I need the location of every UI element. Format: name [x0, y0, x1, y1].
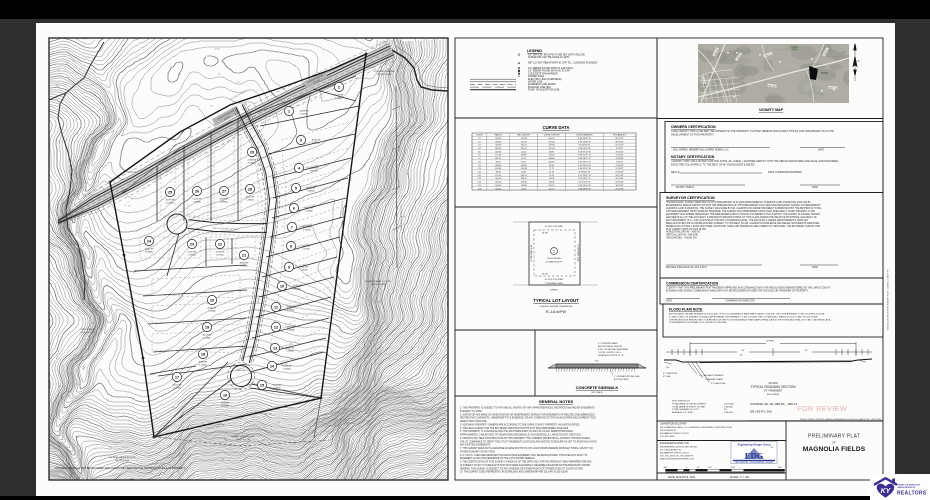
svg-text:62°51'57": 62°51'57" — [615, 145, 624, 147]
svg-text:C9: C9 — [478, 165, 480, 167]
svg-text:758: 758 — [100, 349, 103, 351]
svg-text:STREET: STREET — [258, 295, 261, 303]
svg-text:N: N — [858, 59, 860, 63]
svg-text:20.08: 20.08 — [549, 178, 554, 180]
svg-text:10. THIS SURVEY DOES REPRESENT: 10. THIS SURVEY DOES REPRESENT OR ESTABL… — [460, 471, 569, 474]
svg-text:100': 100' — [708, 467, 712, 469]
svg-text:240.00: 240.00 — [495, 178, 501, 180]
svg-text:WBILLINGS@ENGDESGRP.COM: WBILLINGS@ENGDESGRP.COM — [660, 459, 694, 461]
svg-text:OWNER/DEVELOPER: OWNER/DEVELOPER — [660, 422, 687, 426]
svg-text:PRELIMINARY PLAT: PRELIMINARY PLAT — [808, 434, 861, 440]
svg-text:57°45'15": 57°45'15" — [615, 155, 624, 157]
svg-text:760: 760 — [83, 195, 86, 197]
svg-text:760: 760 — [378, 158, 381, 160]
svg-text:736: 736 — [210, 105, 213, 108]
svg-text:S 51°36'14" W: S 51°36'14" W — [578, 165, 591, 167]
svg-text:41,215 SF: 41,215 SF — [287, 327, 297, 329]
svg-text:4. THE FIELD SURVEY FOR THE BO: 4. THE FIELD SURVEY FOR THE BOUNDARY DEP… — [460, 427, 569, 430]
svg-text:112.14: 112.14 — [521, 141, 528, 143]
svg-text:C10: C10 — [478, 168, 482, 170]
svg-text:GEOID MODEL – GEOID 12A: GEOID MODEL – GEOID 12A — [666, 237, 697, 240]
svg-text:MAGNOLIA FIELDS PRELIMINARY PL: MAGNOLIA FIELDS PRELIMINARY PLAT – LARUE… — [887, 269, 890, 330]
svg-text:165.74: 165.74 — [521, 145, 528, 147]
svg-text:DB 248 PG 441: DB 248 PG 441 — [377, 74, 392, 76]
svg-text:DB 108 PG 93: DB 108 PG 93 — [115, 460, 129, 462]
svg-text:UTILITY COMPANIES TO VERIFY TH: UTILITY COMPANIES TO VERIFY THE UTILITY … — [460, 440, 597, 443]
svg-text:MAGNOLIA FIELDS: MAGNOLIA FIELDS — [803, 446, 866, 453]
svg-text:HUNAC & BELVED DMY: HUNAC & BELVED DMY — [231, 435, 255, 438]
svg-text:CHORD LENGTH: CHORD LENGTH — [544, 135, 560, 137]
svg-text:(NO SCALE): (NO SCALE) — [591, 391, 603, 394]
svg-text:224 N MILES ST: 224 N MILES ST — [660, 430, 677, 432]
svg-text:DATE COMMISSION EXPIRES: DATE COMMISSION EXPIRES — [768, 171, 802, 174]
svg-text:7. THIS SURVEY DOES NOT GUARAN: 7. THIS SURVEY DOES NOT GUARANTEE ACCESS… — [460, 447, 593, 450]
svg-text:PLANNING AND ZONING COMMISSION: PLANNING AND ZONING COMMISSION, WHICH MA… — [666, 290, 809, 293]
svg-text:350.00: 350.00 — [495, 188, 501, 190]
svg-text:47,388 SF: 47,388 SF — [248, 159, 258, 161]
svg-text:256.00: 256.00 — [495, 138, 501, 140]
svg-text:ELIZABETHTOWN KY 42701: ELIZABETHTOWN KY 42701 — [660, 432, 690, 435]
svg-text:DATE: DATE — [666, 299, 672, 302]
svg-text:794: 794 — [371, 340, 374, 342]
svg-text:5°23'23": 5°23'23" — [616, 161, 624, 163]
svg-text:C11: C11 — [478, 172, 481, 174]
svg-text:3. ADJOINING PROPERTY OWNERS A: 3. ADJOINING PROPERTY OWNERS ARE ACCORDI… — [460, 423, 580, 426]
svg-text:50,894 SF: 50,894 SF — [305, 208, 315, 210]
svg-text:SITE: SITE — [821, 71, 828, 75]
svg-text:270–769–7438 270–765–6908 FX: 270–769–7438 270–765–6908 FX — [660, 456, 694, 458]
svg-text:8. IF UTILITY LINES ARE REMOVE: 8. IF UTILITY LINES ARE REMOVED THE ASSO… — [460, 454, 588, 457]
svg-text:4" CRUSHED STONE, DGA,: 4" CRUSHED STONE, DGA, — [614, 375, 640, 378]
svg-text:AND MEETS ALL OF THE ACCURACY: AND MEETS ALL OF THE ACCURACY & PRECISIO… — [666, 216, 817, 219]
svg-text:44,799 SF: 44,799 SF — [166, 199, 176, 201]
svg-text:C12: C12 — [478, 175, 482, 177]
svg-text:48,704 SF: 48,704 SF — [203, 334, 213, 336]
svg-text:713: 713 — [58, 141, 61, 144]
svg-text:499.00: 499.00 — [495, 165, 501, 167]
svg-text:WILL HARRIS HOMES, LLC & HAYFI: WILL HARRIS HOMES, LLC & HAYFIELD BROTHE… — [660, 426, 732, 429]
svg-text:21°47'40": 21°47'40" — [615, 188, 624, 190]
svg-text:780: 780 — [420, 265, 423, 267]
svg-text:198.21: 198.21 — [521, 178, 527, 180]
svg-text:50,709 SF: 50,709 SF — [335, 94, 345, 96]
svg-text:726: 726 — [128, 205, 131, 208]
svg-text:GPS MEASUREMENT OR BY RANDOM T: GPS MEASUREMENT OR BY RANDOM TRAVERSE. T… — [666, 210, 815, 213]
svg-text:61°26'10": 61°26'10" — [615, 182, 624, 184]
svg-text:S 66°28'11" W: S 66°28'11" W — [578, 158, 591, 160]
svg-text:100.54: 100.54 — [521, 175, 528, 177]
svg-text:17: 17 — [175, 375, 179, 380]
svg-text:2%: 2% — [739, 354, 742, 356]
svg-text:C5: C5 — [478, 151, 480, 153]
svg-text:40' R/W: 40' R/W — [766, 341, 775, 343]
svg-text:789: 789 — [110, 145, 113, 148]
svg-text:51,401 SF: 51,401 SF — [193, 198, 203, 200]
svg-text:1.080 AC: 1.080 AC — [307, 190, 315, 193]
svg-text:92.07: 92.07 — [521, 161, 526, 163]
svg-text:S 40°31'10" W: S 40°31'10" W — [578, 168, 591, 170]
svg-text:SITE STATISTICS: SITE STATISTICS — [672, 400, 690, 403]
svg-text:⇅ 4": ⇅ 4" — [595, 360, 599, 363]
svg-text:DATE: DATE — [812, 266, 818, 269]
svg-text:163.92: 163.92 — [549, 161, 555, 163]
svg-text:400': 400' — [778, 467, 782, 469]
svg-text:31°21'35": 31°21'35" — [615, 178, 624, 180]
svg-text:300.00: 300.00 — [495, 145, 501, 147]
svg-text:1.169 AC: 1.169 AC — [287, 309, 295, 312]
svg-text:702: 702 — [292, 64, 296, 67]
svg-text:48,804 SF: 48,804 SF — [240, 262, 250, 264]
svg-text:29: 29 — [724, 409, 727, 411]
svg-text:HORIZONTAL DATUM – NAD 83: HORIZONTAL DATUM – NAD 83 — [666, 231, 700, 234]
svg-text:PLAT COMPLY WITH 201 KAR 18:15: PLAT COMPLY WITH 201 KAR 18:150. — [666, 228, 707, 231]
svg-text:99.90: 99.90 — [549, 165, 554, 167]
svg-text:704: 704 — [217, 48, 220, 51]
svg-text:1.039 AC: 1.039 AC — [283, 368, 291, 371]
svg-text:165.67: 165.67 — [549, 138, 555, 140]
svg-text:ENGINEERING DESIGN GROUP, INC: ENGINEERING DESIGN GROUP, INC FOR THE PR… — [666, 204, 821, 207]
svg-text:DEVELOPMENT OF THIS PROPERTY.: DEVELOPMENT OF THIS PROPERTY. — [671, 133, 714, 136]
svg-text:121.00: 121.00 — [495, 175, 501, 177]
svg-text:789: 789 — [290, 407, 293, 409]
svg-text:CONCRETE SIDEWALK: CONCRETE SIDEWALK — [576, 386, 619, 390]
svg-text:25.41: 25.41 — [521, 151, 526, 153]
svg-text:115 S MULBERRY ST: 115 S MULBERRY ST — [660, 450, 682, 452]
svg-text:10' DR & UTIL ESMT: 10' DR & UTIL ESMT — [545, 279, 565, 281]
svg-text:RESTRICTIVE COVENANTS, OWNERSH: RESTRICTIVE COVENANTS, OWNERSHIP TITLE E… — [460, 417, 596, 420]
svg-text:132.62: 132.62 — [549, 155, 555, 157]
svg-text:PARKVIEW CT: PARKVIEW CT — [237, 369, 251, 372]
svg-text:THE BOUNDARY SURVEY DEPICTED O: THE BOUNDARY SURVEY DEPICTED ON THIS PRE… — [666, 201, 811, 204]
svg-text:VICINITY MAP: VICINITY MAP — [759, 108, 784, 112]
svg-text:98.87: 98.87 — [549, 151, 554, 153]
svg-text:29.164 AC: 29.164 AC — [724, 402, 735, 405]
svg-text:423.00: 423.00 — [495, 168, 501, 170]
svg-text:1. THIS PROPERTY IS SUBJECT TO: 1. THIS PROPERTY IS SUBJECT TO ANY AND A… — [460, 407, 595, 410]
svg-text:0.966 AC: 0.966 AC — [293, 288, 301, 291]
svg-text:4" CONCRETE WALK: 4" CONCRETE WALK — [598, 342, 618, 345]
svg-text:APPROXIMATELY 2 MILES EAST OF: APPROXIMATELY 2 MILES EAST OF DOWNTOWN H… — [460, 434, 582, 437]
svg-text:S 57°47'22" W: S 57°47'22" W — [578, 151, 591, 153]
svg-text:RADIUS: RADIUS — [495, 134, 503, 137]
svg-text:788: 788 — [74, 435, 77, 438]
svg-text:141.48: 141.48 — [521, 168, 527, 170]
svg-text:57°58'17": 57°58'17" — [615, 168, 624, 170]
svg-text:1.148 AC: 1.148 AC — [273, 387, 281, 390]
svg-text:SURVEYOR CAP "BILLINGS LS 3475: SURVEYOR CAP "BILLINGS LS 3475" — [528, 56, 570, 59]
svg-text:S 08°05'12" W 643.12': S 08°05'12" W 643.12' — [340, 200, 345, 220]
svg-text:FLOOD PLAIN NOTE: FLOOD PLAIN NOTE — [669, 308, 703, 312]
svg-text:EXPANSION JOINTS 20' OC: EXPANSION JOINTS 20' OC — [598, 354, 624, 357]
svg-text:9°22'25": 9°22'25" — [616, 148, 624, 150]
svg-text:X, SAID ZONE X IS DEFINED ON S: X, SAID ZONE X IS DEFINED ON SAID MAP AS… — [669, 315, 818, 318]
svg-text:EXECUTED VOLUNTARILY, TO THE B: EXECUTED VOLUNTARILY, TO THE BEST OF MY … — [671, 163, 755, 166]
svg-text:OWNERS CERTIFICATION: OWNERS CERTIFICATION — [671, 125, 716, 129]
svg-text:C2: C2 — [478, 141, 480, 143]
svg-text:718: 718 — [264, 413, 267, 415]
svg-text:CHAIRMAN OR DIRECTOR: CHAIRMAN OR DIRECTOR — [726, 299, 755, 302]
svg-text:DATE: DATE — [812, 186, 818, 189]
svg-text:5. THIS PROPERTY IS LOCATED AL: 5. THIS PROPERTY IS LOCATED ALONG THE SO… — [460, 430, 574, 433]
svg-text:CONTR. JOINTS 4' OC &: CONTR. JOINTS 4' OC & — [598, 352, 621, 354]
svg-text:S 89°43' W STREET (50' R/W): S 89°43' W STREET (50' R/W) — [212, 228, 238, 231]
svg-text:122.22: 122.22 — [549, 188, 555, 190]
svg-text:I CERTIFY THAT THIS PRELIMINAR: I CERTIFY THAT THIS PRELIMINARY PLAT HAS… — [666, 287, 831, 290]
svg-text:TOTAL NUMBER OF LOTS: TOTAL NUMBER OF LOTS — [672, 408, 699, 411]
svg-text:51,470 SF: 51,470 SF — [188, 251, 198, 253]
svg-text:42,073 SF: 42,073 SF — [293, 286, 303, 288]
svg-text:10: 10 — [280, 284, 284, 289]
svg-text:1.145 AC: 1.145 AC — [199, 363, 207, 366]
svg-text:118.08: 118.08 — [549, 182, 555, 184]
svg-text:729: 729 — [406, 172, 409, 175]
svg-text:CURVE DATA: CURVE DATA — [543, 125, 570, 130]
svg-text:27°53'45": 27°53'45" — [615, 172, 624, 174]
svg-text:S 68°14'13" W: S 68°14'13" W — [578, 148, 591, 150]
svg-text:4" CONCRETE: 4" CONCRETE — [663, 373, 678, 375]
svg-text:44,898 SF: 44,898 SF — [300, 111, 310, 113]
svg-text:65.72: 65.72 — [521, 158, 526, 160]
svg-text:N 05°44'02" E 385.20': N 05°44'02" E 385.20' — [129, 291, 134, 310]
svg-text:2. SURVEYOR HAS MADE NO INVEST: 2. SURVEYOR HAS MADE NO INVESTIGATION OR… — [460, 413, 595, 416]
svg-text:1.029 AC: 1.029 AC — [221, 404, 229, 407]
svg-text:47,506 SF: 47,506 SF — [216, 251, 226, 253]
svg-text:S 59°51'27" W: S 59°51'27" W — [578, 155, 591, 157]
svg-text:175.83: 175.83 — [521, 138, 527, 140]
svg-text:S 48°49'39" W: S 48°49'39" W — [578, 188, 591, 190]
svg-text:765: 765 — [58, 385, 61, 388]
svg-text:MARY RAWLIN: MARY RAWLIN — [81, 328, 96, 331]
svg-text:760: 760 — [85, 227, 88, 230]
svg-text:1.164 AC: 1.164 AC — [335, 96, 343, 99]
svg-text:50,922 SF: 50,922 SF — [287, 307, 297, 309]
svg-text:1.138 AC: 1.138 AC — [246, 198, 254, 201]
svg-text:C15: C15 — [478, 185, 482, 187]
svg-text:C8: C8 — [478, 161, 480, 163]
svg-text:®: ® — [925, 489, 927, 492]
svg-text:718: 718 — [72, 60, 75, 63]
svg-text:S 17°36'51" W: S 17°36'51" W — [578, 175, 591, 177]
svg-text:C7: C7 — [478, 158, 480, 160]
svg-text:DB 211 PG 154: DB 211 PG 154 — [236, 439, 251, 441]
svg-text:2" ASPHALT BASE: 2" ASPHALT BASE — [705, 378, 723, 381]
svg-text:15' DR ESMT & B/L: 15' DR ESMT & B/L — [577, 244, 579, 262]
svg-text:1.028 AC: 1.028 AC — [166, 201, 174, 204]
svg-text:1 ½" ASPHALT SURFACE: 1 ½" ASPHALT SURFACE — [699, 373, 724, 377]
svg-text:93.00: 93.00 — [496, 172, 501, 174]
svg-text:725: 725 — [141, 417, 144, 420]
svg-text:743: 743 — [237, 81, 240, 84]
svg-text:77°50'22": 77°50'22" — [615, 165, 624, 167]
svg-text:49,916 SF: 49,916 SF — [312, 140, 322, 142]
svg-text:705: 705 — [351, 385, 354, 387]
svg-text:CLEMONS LAND SURVEYING, THE SU: CLEMONS LAND SURVEYING, THE SURVEY WAS M… — [666, 207, 822, 210]
svg-text:710: 710 — [121, 281, 124, 283]
svg-text:137.88: 137.88 — [549, 145, 555, 147]
svg-text:COMMISSION CERTIFICATION: COMMISSION CERTIFICATION — [666, 282, 718, 286]
svg-text:0': 0' — [686, 467, 688, 469]
svg-text:0.946 AC: 0.946 AC — [287, 329, 295, 332]
svg-text:SEARCH MAY DISCLOSE.: SEARCH MAY DISCLOSE. — [460, 420, 488, 423]
svg-text:S 24°16'38" W: S 24°16'38" W — [578, 141, 591, 143]
svg-text:S 50°14'14" W: S 50°14'14" W — [578, 185, 591, 187]
svg-text:781: 781 — [362, 446, 365, 448]
svg-text:TYPICAL LOT LAYOUT: TYPICAL LOT LAYOUT — [533, 298, 579, 303]
svg-text:9" DGA STONE: 9" DGA STONE — [711, 382, 726, 385]
svg-text:VERTICAL DATUM – NAVD 88: VERTICAL DATUM – NAVD 88 — [666, 234, 698, 237]
svg-text:200': 200' — [731, 467, 735, 469]
svg-text:332.00: 332.00 — [495, 151, 501, 153]
svg-text:148.86: 148.86 — [549, 158, 555, 160]
svg-text:1.168 AC: 1.168 AC — [305, 210, 313, 213]
svg-text:1.088 AC: 1.088 AC — [248, 161, 256, 164]
svg-text:750: 750 — [354, 305, 357, 308]
svg-text:C13: C13 — [478, 178, 482, 180]
svg-text:0.940 AC: 0.940 AC — [724, 411, 733, 414]
svg-text:50,005 SF: 50,005 SF — [208, 307, 218, 309]
svg-text:761: 761 — [66, 62, 69, 65]
svg-text:ENGINEERING DESIGN GROUP INC: ENGINEERING DESIGN GROUP INC — [660, 447, 698, 449]
svg-text:6"X6"-#10 WELDED WIRE MESH: 6"X6"-#10 WELDED WIRE MESH — [598, 349, 629, 351]
svg-text:756: 756 — [93, 95, 96, 97]
svg-text:793: 793 — [409, 347, 413, 350]
svg-text:80.00: 80.00 — [496, 161, 501, 163]
svg-text:16°23'47": 16°23'47" — [615, 185, 624, 187]
svg-text:175.00: 175.00 — [495, 155, 501, 157]
svg-text:Engineering Design Group: Engineering Design Group — [738, 443, 771, 447]
svg-text:43°19'15": 43°19'15" — [615, 141, 624, 143]
svg-text:ENGINEER/SURVEYOR: ENGINEER/SURVEYOR — [660, 441, 689, 445]
svg-text:15' DR ESMT & B/L: 15' DR ESMT & B/L — [531, 243, 533, 261]
svg-text:30' B/L: 30' B/L — [542, 233, 549, 235]
svg-text:43,136 SF: 43,136 SF — [310, 168, 320, 170]
svg-text:769: 769 — [358, 106, 361, 109]
svg-text:EASEMENT ALONG THE PERIMETER O: EASEMENT ALONG THE PERIMETER OF THE LOTS… — [460, 457, 535, 460]
svg-text:S 6°19'23" W: S 6°19'23" W — [579, 182, 591, 184]
svg-text:715: 715 — [409, 261, 412, 264]
svg-text:792: 792 — [443, 289, 446, 292]
svg-text:780: 780 — [218, 73, 221, 76]
svg-text:700: 700 — [418, 149, 421, 152]
svg-text:THIS DOCUMENT MAY NOT BE RECOR: THIS DOCUMENT MAY NOT BE RECORDED AND CA… — [55, 467, 186, 470]
svg-text:14': 14' — [742, 350, 745, 352]
svg-text:436.00: 436.00 — [495, 141, 501, 143]
svg-text:47,061 SF: 47,061 SF — [307, 188, 317, 190]
svg-text:7: 7 — [291, 225, 293, 230]
svg-text:DELTA ANGLE: DELTA ANGLE — [613, 134, 627, 137]
svg-text:30,000 SF MIN: 30,000 SF MIN — [547, 258, 561, 260]
svg-text:49,863 SF: 49,863 SF — [199, 361, 209, 363]
svg-text:HEART OF KENTUCKY: HEART OF KENTUCKY — [898, 483, 921, 486]
svg-text:44,839 SF: 44,839 SF — [221, 402, 231, 404]
svg-text:2%: 2% — [666, 367, 669, 369]
svg-text:TOTAL AREA OF RIGHT OF WAY: TOTAL AREA OF RIGHT OF WAY — [672, 405, 706, 408]
svg-text:1.091 AC: 1.091 AC — [216, 253, 224, 256]
svg-text:CURVE: CURVE — [476, 135, 483, 137]
svg-text:ROLAND DANIEL - CO. RD: ROLAND DANIEL - CO. RD — [365, 280, 391, 283]
svg-text:183.85: 183.85 — [521, 165, 527, 167]
svg-text:TYPICAL ROADWAY SECTION: TYPICAL ROADWAY SECTION — [750, 385, 796, 389]
svg-text:OTHER ROADWAY OF ANY KIND.: OTHER ROADWAY OF ANY KIND. — [460, 450, 496, 453]
svg-text:PVA#040–00–00–086.00, –086.12: PVA#040–00–00–086.00, –086.12 — [750, 402, 798, 406]
svg-text:50,024 SF: 50,024 SF — [273, 385, 283, 387]
svg-text:1.148 AC: 1.148 AC — [208, 309, 216, 312]
svg-text:S 50°14'11" W: S 50°14'11" W — [578, 161, 591, 163]
svg-text:109.96: 109.96 — [521, 155, 527, 157]
svg-text:9. THE CERTIFICATION OF THIS S: 9. THE CERTIFICATION OF THIS SURVEY IS M… — [460, 461, 592, 464]
svg-text:756: 756 — [277, 421, 280, 424]
svg-text:(UNLESS SHOWN OTHERWISE): (UNLESS SHOWN OTHERWISE) — [539, 306, 572, 308]
svg-text:R–1A w/PW: R–1A w/PW — [546, 310, 567, 314]
svg-text:790: 790 — [223, 438, 226, 441]
svg-text:DATE: AUGUST 8, 2022: DATE: AUGUST 8, 2022 — [668, 476, 696, 479]
svg-text:ANY EXISTING EASEMENTS.: ANY EXISTING EASEMENTS. — [460, 444, 491, 447]
svg-text:SEAL #: SEAL # — [671, 171, 680, 174]
svg-text:746: 746 — [262, 440, 265, 442]
svg-text:137.01: 137.01 — [521, 148, 527, 150]
svg-text:51,251 SF: 51,251 SF — [302, 246, 312, 248]
svg-text:37.18: 37.18 — [549, 172, 554, 174]
svg-text:1.180 AC: 1.180 AC — [193, 200, 201, 203]
svg-text:NOTARY PUBLIC: NOTARY PUBLIC — [676, 186, 695, 189]
svg-text:EACH MONUMENT IS +/– 0.05' (10: EACH MONUMENT IS +/– 0.05' (100 PPM) AT … — [666, 219, 809, 222]
svg-text:50,516 SF: 50,516 SF — [300, 267, 310, 269]
svg-text:C6: C6 — [478, 155, 480, 157]
svg-text:420.00: 420.00 — [495, 185, 501, 187]
svg-text:741: 741 — [245, 394, 248, 397]
svg-text:711: 711 — [107, 194, 110, 196]
svg-text:OF: OF — [832, 441, 836, 445]
svg-text:747: 747 — [421, 296, 424, 299]
svg-text:0.998 AC: 0.998 AC — [145, 250, 153, 253]
svg-text:IN EFFECT TO DATE.: IN EFFECT TO DATE. — [460, 410, 483, 413]
svg-text:1.182 AC: 1.182 AC — [188, 253, 196, 256]
svg-text:1½" PAVEMENT: 1½" PAVEMENT — [763, 389, 783, 393]
svg-text:DB 269 PG 266: DB 269 PG 266 — [750, 410, 772, 414]
svg-text:129.86: 129.86 — [521, 185, 527, 187]
svg-text:SET 1/2"X18" REBAR WITH ID CAP: SET 1/2"X18" REBAR WITH ID CAP "B.L. CLE… — [528, 62, 598, 65]
svg-text:HEREON DO ACTUALLY EXIST AND T: HEREON DO ACTUALLY EXIST AND THEIR LOCAT… — [666, 225, 820, 228]
svg-text:STREET: STREET — [550, 290, 559, 292]
svg-text:10' DR & UTIL ESMT: 10' DR & UTIL ESMT — [545, 226, 565, 228]
svg-text:AS INDICATED ON MAP NUMBER 211: AS INDICATED ON MAP NUMBER 21123C0150C O… — [669, 313, 825, 316]
svg-text:S 76°29'11" W: S 76°29'11" W — [578, 178, 591, 180]
svg-text:48,687 SF: 48,687 SF — [286, 348, 296, 350]
svg-text:GENERAL NOTES: GENERAL NOTES — [539, 399, 574, 404]
svg-text:6. PRIOR TO ANY NEW CONSTRUCTI: 6. PRIOR TO ANY NEW CONSTRUCTION ON THIS… — [460, 437, 590, 440]
svg-text:C16: C16 — [478, 188, 482, 190]
svg-text:40' MAX BLDG HT: 40' MAX BLDG HT — [546, 261, 563, 264]
svg-text:S 60°38'42" W: S 60°38'42" W — [578, 138, 591, 140]
svg-text:725: 725 — [433, 432, 436, 434]
svg-text:CONFIRMATION OR DENIAL OF FLOO: CONFIRMATION OR DENIAL OF FLOODING POTEN… — [669, 321, 727, 324]
svg-text:1.160 AC: 1.160 AC — [300, 269, 308, 272]
svg-text:BROOM FINISH, 4000 PSI: BROOM FINISH, 4000 PSI — [598, 346, 622, 348]
svg-text:S 8°39'41" W: S 8°39'41" W — [579, 172, 591, 174]
svg-text:ASSOCIATION OF: ASSOCIATION OF — [898, 486, 916, 489]
svg-text:80°22'21": 80°22'21" — [615, 138, 624, 140]
svg-text:52.42: 52.42 — [549, 175, 554, 177]
svg-text:20: 20 — [210, 298, 214, 303]
svg-text:IS SUBJECT TO ANY FUTURE FACTS: IS SUBJECT TO ANY FUTURE FACTS THAT MAY … — [460, 464, 590, 467]
svg-text:COLEMAN EAGLE SCOUTS: COLEMAN EAGLE SCOUTS — [108, 456, 136, 459]
svg-text:CHORD BEARING: CHORD BEARING — [576, 134, 593, 137]
svg-text:730: 730 — [84, 182, 87, 185]
svg-text:-100': -100' — [663, 467, 668, 469]
svg-text:4" DGA: 4" DGA — [663, 375, 671, 378]
svg-text:HEREON. THIS SURVEY IS SUBJEC: HEREON. THIS SURVEY IS SUBJECT TO ANY AD… — [460, 467, 584, 470]
svg-text:14': 14' — [805, 350, 808, 352]
